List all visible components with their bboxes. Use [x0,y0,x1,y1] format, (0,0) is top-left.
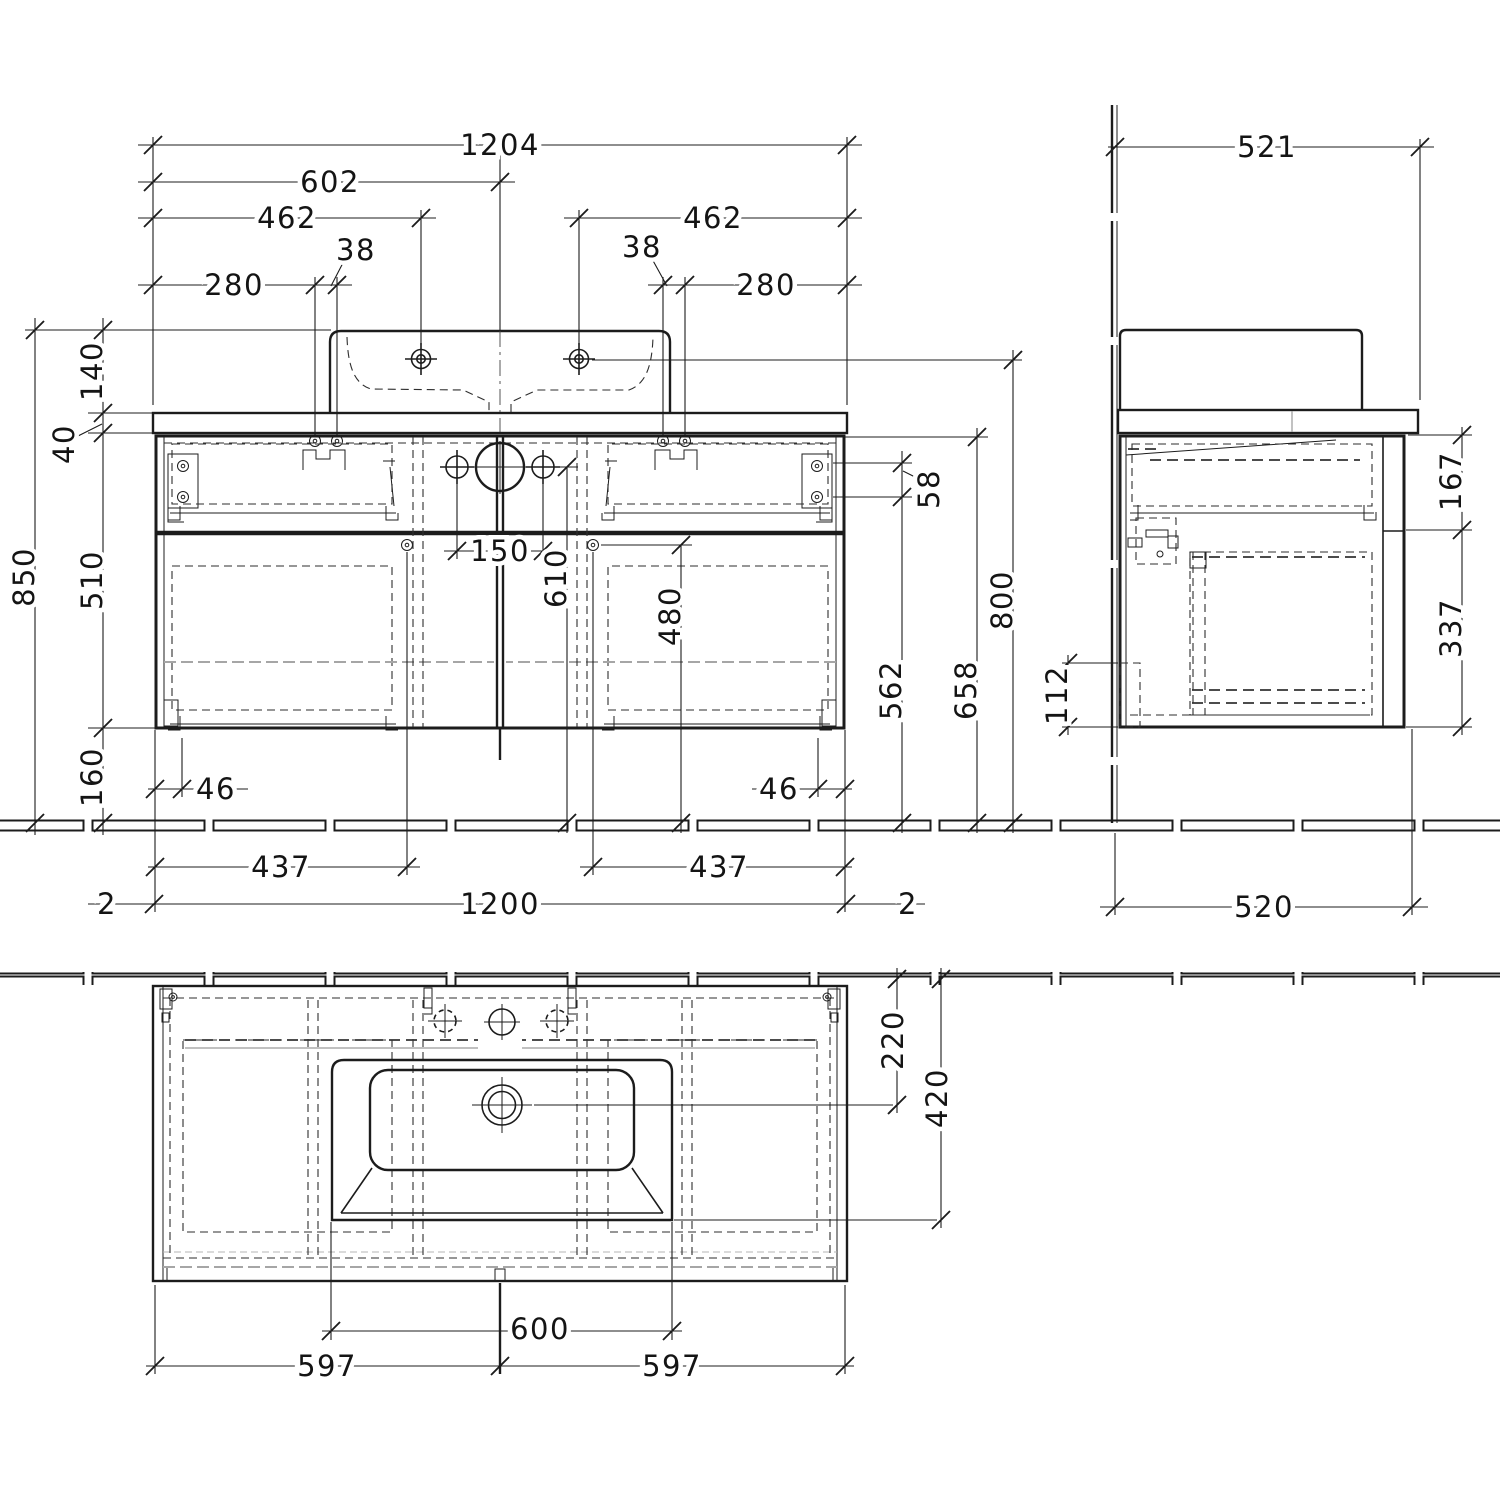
dim-658: 658 [949,660,983,720]
dim-420: 420 [920,1068,954,1128]
dim-462-right: 462 [683,201,743,235]
dim-150: 150 [470,534,530,568]
side-dimensions: 521 167 337 112 520 [1040,130,1472,924]
tap-hole-optional-left [428,1004,462,1038]
dim-437-right: 437 [689,850,749,884]
dim-38-right: 38 [622,230,662,264]
dim-562: 562 [874,660,908,720]
dim-38-left: 38 [336,233,376,267]
basin-slope [341,1168,663,1213]
dim-510: 510 [75,550,109,610]
floor-line-front-side [0,819,1500,832]
tap-hole-center [484,1004,520,1040]
side-view [1108,105,1418,823]
dim-1200: 1200 [460,887,540,921]
pipe-hole-right [526,450,560,484]
dim-602: 602 [300,165,360,199]
siphon-recess [1120,663,1140,727]
dim-46-left: 46 [196,772,236,806]
tap-hole-left [405,343,437,375]
front-view [153,331,847,730]
dim-140: 140 [75,341,109,401]
vanity-dimension-drawing: 1204 602 462 462 38 38 280 280 140 40 85… [0,0,1500,1500]
wall-segment-breaks [1108,213,1120,765]
dim-597-right: 597 [642,1349,702,1383]
cabinet-plan [153,986,847,1281]
dim-850: 850 [7,547,41,607]
wall-bracket [1128,518,1178,564]
dim-220: 220 [876,1010,910,1070]
drain-hole [472,1077,532,1133]
dim-112: 112 [1040,665,1074,725]
dim-437-left: 437 [251,850,311,884]
technical-drawing-page: 1204 602 462 462 38 38 280 280 140 40 85… [0,0,1500,1500]
tap-hole-right [563,343,595,375]
basin-profile [1120,330,1362,410]
dim-520: 520 [1234,890,1294,924]
pipe-hole-left [440,450,474,484]
cabinet-side [1120,436,1404,727]
plan-dimensions: 220 420 600 597 597 [146,968,954,1383]
dim-280-left: 280 [204,268,264,302]
dim-58: 58 [912,469,946,509]
tap-hole-optional-right [540,1004,574,1038]
plan-view [153,986,847,1281]
dim-610: 610 [539,548,573,608]
countertop-side [1118,410,1418,433]
dim-337: 337 [1434,598,1468,658]
dim-1204: 1204 [460,128,540,162]
wall-line-plan [0,972,1500,985]
dim-597-left: 597 [297,1349,357,1383]
dim-800: 800 [985,570,1019,630]
drawer-fronts [1383,436,1404,727]
dim-480: 480 [653,586,687,646]
front-strip-notch [495,1269,505,1281]
dim-167: 167 [1434,451,1468,511]
dim-160: 160 [75,747,109,807]
dim-600: 600 [510,1312,570,1346]
dim-280-right: 280 [736,268,796,302]
dim-521: 521 [1237,130,1297,164]
dim-2-left: 2 [97,887,117,921]
dim-46-right: 46 [759,772,799,806]
dim-462-left: 462 [257,201,317,235]
front-dimensions: 1204 602 462 462 38 38 280 280 140 40 85… [7,128,1022,921]
dim-40: 40 [47,424,81,464]
dim-2-right: 2 [898,887,918,921]
